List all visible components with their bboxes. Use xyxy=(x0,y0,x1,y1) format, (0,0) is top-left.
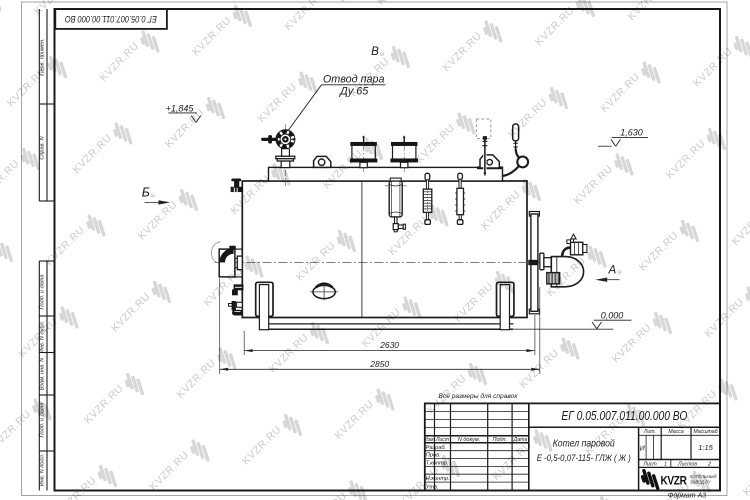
svg-text:ω: ω xyxy=(617,270,621,276)
svg-text:ω: ω xyxy=(150,193,155,199)
svg-text:2630: 2630 xyxy=(379,340,399,350)
svg-text:1: 1 xyxy=(664,461,667,467)
svg-text:Изм.: Изм. xyxy=(424,437,435,443)
svg-text:1:15: 1:15 xyxy=(698,443,713,452)
svg-text:Разраб.: Разраб. xyxy=(426,445,446,451)
svg-text:Инв. N подл.: Инв. N подл. xyxy=(40,454,46,487)
svg-text:Б: Б xyxy=(142,186,150,200)
svg-text:Лист: Лист xyxy=(642,461,657,467)
svg-text:1,630: 1,630 xyxy=(620,128,643,138)
svg-text:А: А xyxy=(607,264,616,276)
svg-text:Подп.: Подп. xyxy=(492,437,507,443)
svg-text:Е -0,5-0,07-115- ГЛЖ ( Ж ): Е -0,5-0,07-115- ГЛЖ ( Ж ) xyxy=(537,453,631,463)
svg-text:0,000: 0,000 xyxy=(601,311,624,321)
svg-text:2850: 2850 xyxy=(369,359,389,369)
svg-text:Листов: Листов xyxy=(677,461,697,467)
svg-text:Лит.: Лит. xyxy=(643,429,656,435)
svg-text:Пров.: Пров. xyxy=(426,453,441,459)
svg-text:Масштаб: Масштаб xyxy=(693,429,718,435)
svg-text:+1,845: +1,845 xyxy=(166,103,195,113)
svg-text:Взам. инв. N: Взам. инв. N xyxy=(40,357,46,391)
svg-text:ЕГ 0.05.007.011.00.000 ВО: ЕГ 0.05.007.011.00.000 ВО xyxy=(65,14,157,24)
svg-text:N докум.: N докум. xyxy=(458,437,480,443)
svg-text:Подп. и дата: Подп. и дата xyxy=(40,274,46,309)
svg-text:Справ. N: Справ. N xyxy=(40,135,46,159)
svg-text:В: В xyxy=(371,46,379,58)
svg-text:Лист: Лист xyxy=(435,437,450,443)
